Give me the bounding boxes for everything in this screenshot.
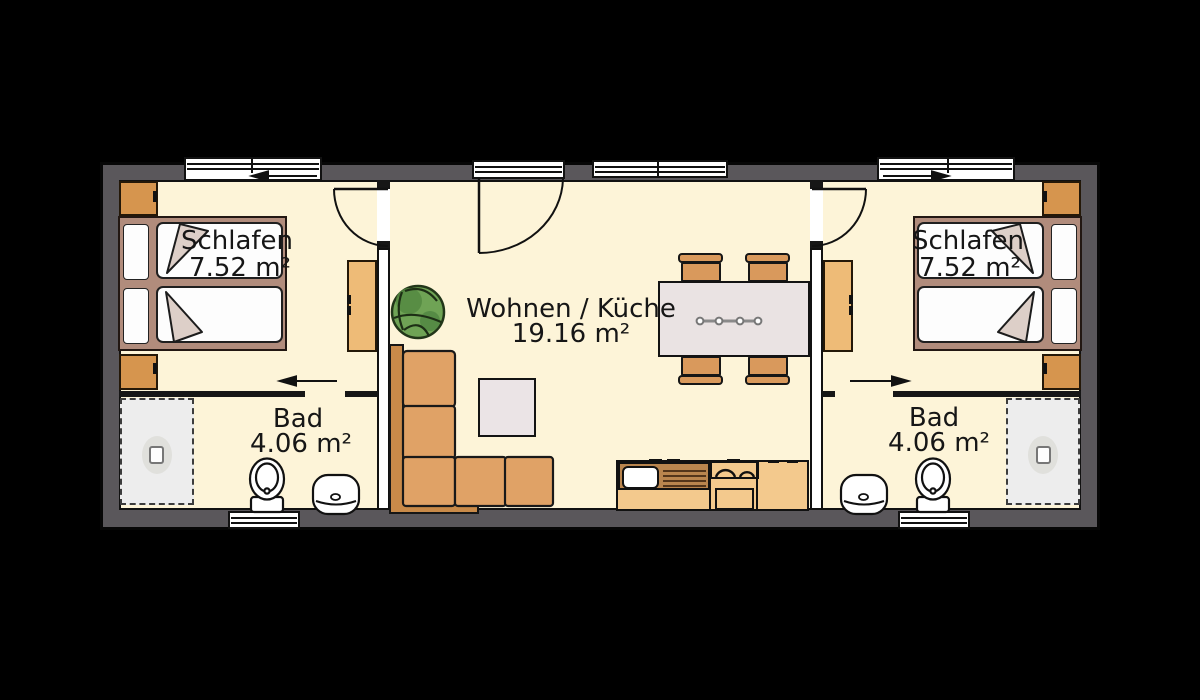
- sink: [622, 466, 659, 489]
- window-living: [592, 160, 728, 178]
- bath-wall-right: [822, 391, 835, 397]
- room-area-bedroom-left: 7.52 m²: [189, 255, 291, 281]
- window-bath-left: [228, 511, 300, 529]
- mattress: [156, 286, 283, 343]
- bath-wall-left: [119, 391, 305, 397]
- door-opening-left: [377, 189, 390, 241]
- chair: [745, 375, 790, 385]
- chair: [748, 356, 788, 376]
- room-area-bath-right: 4.06 m²: [888, 430, 990, 456]
- coffee-table: [478, 378, 536, 437]
- pillow: [1051, 224, 1077, 280]
- mattress: [917, 286, 1044, 343]
- partition-wall-left: [377, 248, 390, 510]
- shower: [120, 398, 194, 505]
- room-area-living: 19.16 m²: [512, 321, 630, 347]
- wall-cap: [810, 180, 823, 189]
- room-label-bedroom-left: Schlafen: [181, 228, 293, 254]
- room-area-bath-left: 4.06 m²: [250, 431, 352, 457]
- chair: [681, 356, 721, 376]
- room-label-bedroom-right: Schlafen: [912, 228, 1024, 254]
- floor-plan-canvas: Schlafen 7.52 m² Schlafen 7.52 m² Wohnen…: [0, 0, 1200, 700]
- room-area-bedroom-right: 7.52 m²: [919, 255, 1021, 281]
- wardrobe: [1042, 181, 1081, 216]
- sliding-window-bedroom-right: [877, 157, 1015, 181]
- pillow: [1051, 288, 1077, 344]
- entry-door-opening: [472, 160, 565, 179]
- window-bath-right: [898, 511, 970, 529]
- wall-cap: [377, 180, 390, 189]
- pillow: [123, 224, 149, 280]
- sliding-window-bedroom-left: [184, 157, 322, 181]
- dresser: [823, 260, 853, 352]
- wardrobe: [1042, 354, 1081, 390]
- chair: [681, 262, 721, 282]
- shower: [1006, 398, 1080, 505]
- wardrobe: [119, 354, 158, 390]
- bath-wall-right: [893, 391, 1081, 397]
- wardrobe: [119, 181, 158, 216]
- pillow: [123, 288, 149, 344]
- chair: [748, 262, 788, 282]
- dining-table: [658, 281, 810, 357]
- bath-wall-left: [345, 391, 378, 397]
- dresser: [347, 260, 377, 352]
- chair: [678, 375, 723, 385]
- door-opening-right: [810, 189, 823, 241]
- partition-wall-right: [810, 248, 823, 510]
